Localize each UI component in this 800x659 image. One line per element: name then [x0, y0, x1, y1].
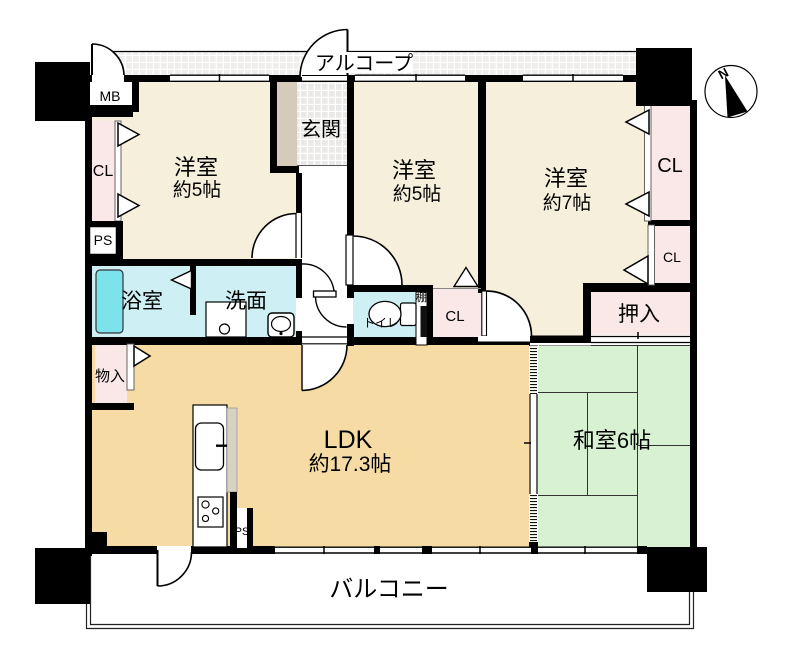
- svg-text:浴室: 浴室: [121, 290, 163, 313]
- svg-text:約7帖: 約7帖: [543, 192, 592, 214]
- svg-text:押入: 押入: [618, 303, 660, 326]
- svg-text:洋室: 洋室: [544, 166, 588, 191]
- svg-text:CL: CL: [657, 155, 683, 177]
- svg-text:バルコニー: バルコニー: [329, 576, 449, 603]
- svg-text:CL: CL: [93, 163, 114, 180]
- svg-text:洗面: 洗面: [225, 290, 267, 313]
- svg-text:洋室: 洋室: [392, 158, 436, 183]
- svg-text:物入: 物入: [95, 368, 125, 385]
- svg-text:CL: CL: [445, 308, 464, 325]
- svg-text:PS: PS: [235, 526, 250, 538]
- svg-text:PS: PS: [94, 232, 113, 248]
- svg-text:和室6帖: 和室6帖: [573, 428, 651, 453]
- svg-text:CL: CL: [663, 249, 681, 265]
- svg-text:約5帖: 約5帖: [393, 183, 442, 205]
- svg-text:トイレ: トイレ: [363, 316, 399, 330]
- svg-text:約17.3帖: 約17.3帖: [309, 453, 392, 476]
- svg-text:玄関: 玄関: [301, 118, 341, 141]
- svg-text:棚: 棚: [416, 290, 427, 304]
- svg-text:洋室: 洋室: [174, 155, 218, 180]
- svg-text:約5帖: 約5帖: [173, 179, 222, 201]
- svg-text:MB: MB: [100, 88, 121, 104]
- svg-text:LDK: LDK: [324, 426, 373, 454]
- svg-text:アルコープ: アルコープ: [315, 53, 413, 75]
